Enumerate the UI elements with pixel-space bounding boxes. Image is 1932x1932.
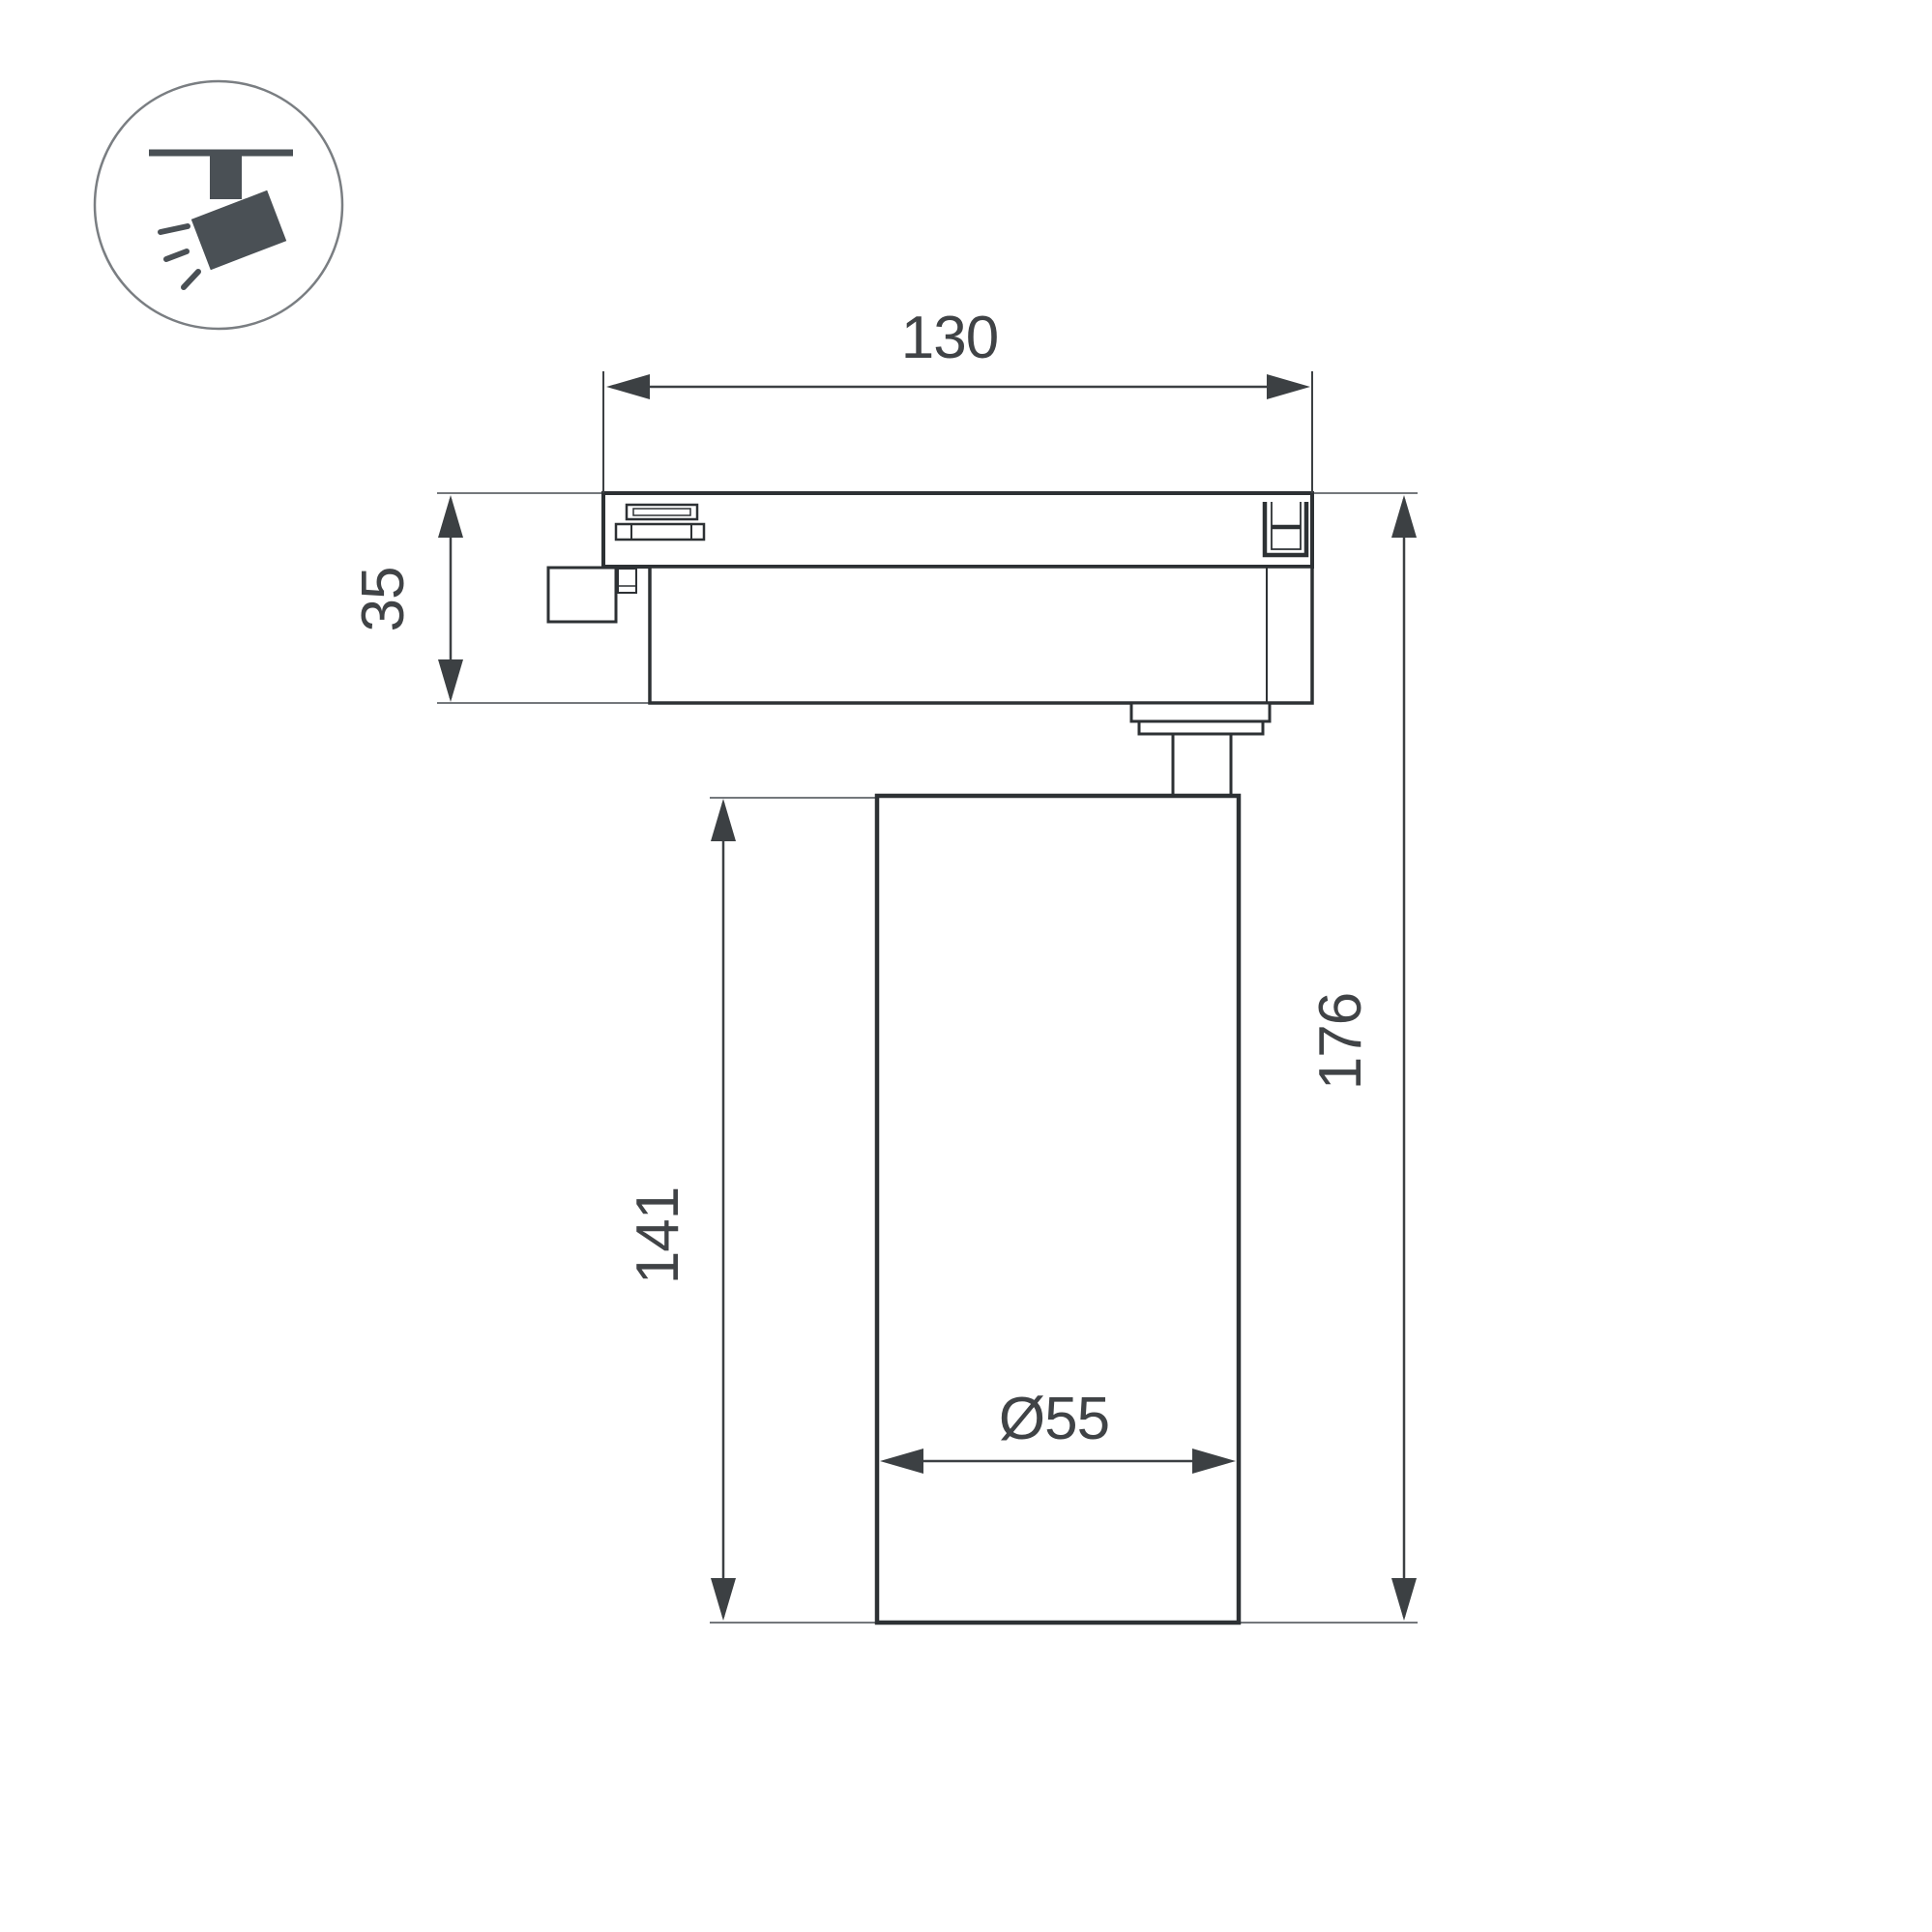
dimension-176: 176: [1307, 495, 1417, 1621]
dimension-label-35: 35: [350, 568, 417, 632]
arrowhead-up-icon: [438, 495, 463, 538]
adapter-lower-section: [650, 567, 1312, 703]
technical-drawing-canvas: 130 35 141 176 Ø55: [0, 0, 1932, 1932]
joint-flange-upper: [1131, 703, 1270, 721]
arrowhead-down-icon: [1391, 1578, 1417, 1621]
arrowhead-down-icon: [438, 659, 463, 702]
dimension-label-130: 130: [901, 305, 998, 371]
arrowhead-right-icon: [1267, 374, 1310, 399]
switch-notch: [618, 569, 636, 593]
selector-switch: [548, 568, 616, 622]
adapter-upper-section: [603, 493, 1312, 567]
icon-circle: [95, 81, 342, 329]
dimension-35: 35: [350, 495, 463, 702]
joint-flange-lower: [1139, 721, 1263, 734]
dimension-141: 141: [625, 799, 736, 1621]
dimension-label-diameter: Ø55: [999, 1386, 1109, 1452]
contact-pad-1: [627, 505, 697, 519]
spotlight-dimension-drawing: 130 35 141 176 Ø55: [0, 0, 1932, 1932]
track-light-icon: [95, 81, 342, 329]
arrowhead-up-icon: [1391, 495, 1417, 538]
icon-mount-stem: [210, 153, 242, 199]
dimension-label-176: 176: [1307, 993, 1374, 1090]
arrowhead-down-icon: [711, 1578, 736, 1621]
lamp-body: [877, 796, 1239, 1623]
track-adapter: [548, 493, 1312, 703]
dimension-label-141: 141: [625, 1187, 691, 1284]
swivel-joint: [1131, 703, 1270, 798]
joint-stem: [1173, 734, 1231, 798]
arrowhead-left-icon: [606, 374, 650, 399]
arrowhead-up-icon: [711, 799, 736, 841]
dimension-130: 130: [603, 305, 1312, 493]
